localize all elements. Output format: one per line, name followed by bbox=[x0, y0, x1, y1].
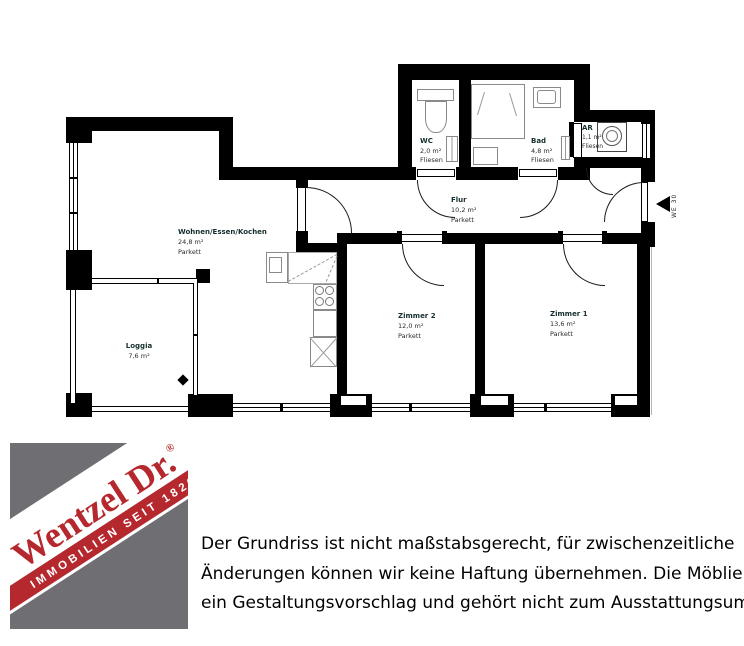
wall bbox=[398, 64, 590, 80]
washbasin-bowl bbox=[537, 90, 556, 104]
section-line bbox=[651, 247, 652, 415]
entrance-unit-label: WE 30 bbox=[671, 190, 678, 218]
room-floor: Fliesen bbox=[420, 156, 443, 166]
room-area: 1,1 m² bbox=[582, 133, 603, 142]
railing-post bbox=[193, 334, 198, 336]
room-label-wc: WC 2,0 m² Fliesen bbox=[420, 137, 443, 166]
company-logo: Wentzel Dr.® IMMOBILIEN SEIT 1820 bbox=[10, 443, 188, 629]
room-area: 12,0 m² bbox=[398, 321, 436, 331]
door-arc-zimmer1 bbox=[563, 244, 605, 286]
loggia-railing-left bbox=[70, 290, 76, 403]
wall bbox=[196, 269, 210, 283]
door-arc-wc bbox=[417, 180, 455, 218]
room-name: Loggia bbox=[108, 341, 170, 351]
window bbox=[372, 403, 470, 412]
disclaimer-text: Der Grundriss ist nicht maßstabsgerecht,… bbox=[201, 530, 744, 619]
kitchen-cabinet bbox=[313, 310, 337, 337]
window-reveal bbox=[481, 396, 508, 405]
door-leaf-zimmer2 bbox=[401, 234, 444, 242]
room-name: Bad bbox=[531, 137, 554, 147]
door-arc-zimmer2 bbox=[402, 244, 444, 286]
door-hinge bbox=[558, 231, 563, 244]
room-name: Wohnen/Essen/Kochen bbox=[178, 227, 267, 237]
room-area: 7,6 m² bbox=[108, 351, 170, 361]
room-floor: Fliesen bbox=[582, 142, 603, 151]
washing-machine-drum-inner bbox=[606, 130, 618, 142]
window-reveal bbox=[615, 396, 637, 405]
room-label-flur: Flur 10,2 m² Parkett bbox=[451, 195, 476, 225]
room-name: Zimmer 2 bbox=[398, 311, 436, 321]
door-leaf-living bbox=[297, 187, 306, 232]
door-leaf-wc bbox=[417, 169, 455, 177]
room-name: Zimmer 1 bbox=[550, 309, 588, 319]
wall bbox=[219, 117, 233, 180]
room-floor: Parkett bbox=[451, 215, 476, 225]
room-area: 10,2 m² bbox=[451, 205, 476, 215]
wall bbox=[459, 80, 471, 167]
door-hinge bbox=[602, 231, 607, 244]
wall bbox=[475, 243, 485, 394]
room-name: Flur bbox=[451, 195, 476, 205]
window-mullion bbox=[409, 403, 412, 412]
cooktop-burner bbox=[325, 297, 334, 306]
wall bbox=[637, 243, 650, 396]
disclaimer-line: Der Grundriss ist nicht maßstabsgerecht,… bbox=[201, 530, 744, 560]
radiator bbox=[561, 136, 570, 160]
wall bbox=[233, 167, 413, 180]
window-mullion bbox=[280, 403, 283, 412]
room-label-ar: AR 1,1 m² Fliesen bbox=[582, 124, 603, 151]
wall bbox=[66, 117, 92, 143]
loggia-glass-front bbox=[92, 278, 197, 284]
disclaimer-line: Änderungen können wir keine Haftung über… bbox=[201, 560, 744, 590]
door-arc-ar bbox=[586, 168, 613, 195]
toilet-cistern bbox=[417, 89, 454, 101]
window-mullion bbox=[69, 177, 78, 179]
wall bbox=[398, 64, 412, 180]
wall bbox=[188, 394, 233, 417]
window-reveal bbox=[341, 396, 366, 405]
room-floor: Fliesen bbox=[531, 156, 554, 166]
wall bbox=[66, 250, 92, 290]
room-name: AR bbox=[582, 124, 603, 133]
loggia-marker-icon bbox=[177, 374, 188, 385]
room-area: 2,0 m² bbox=[420, 147, 443, 157]
loggia-railing-bottom bbox=[92, 406, 188, 412]
door-leaf-zimmer1 bbox=[562, 234, 604, 242]
room-label-bad: Bad 4,8 m² Fliesen bbox=[531, 137, 554, 166]
door-arc-bad bbox=[520, 180, 558, 218]
shower-tub bbox=[471, 84, 525, 139]
window-mullion bbox=[69, 212, 78, 214]
cooktop-burner bbox=[315, 286, 324, 295]
logo-diagonal-band: Wentzel Dr.® IMMOBILIEN SEIT 1820 bbox=[10, 443, 188, 629]
door-leaf-bad bbox=[519, 169, 557, 177]
room-floor: Parkett bbox=[398, 331, 436, 341]
window bbox=[514, 403, 611, 412]
cooktop-burner bbox=[315, 297, 324, 306]
room-area: 4,8 m² bbox=[531, 147, 554, 157]
room-area: 13,6 m² bbox=[550, 319, 588, 329]
window bbox=[642, 124, 651, 158]
cooktop-burner bbox=[325, 286, 334, 295]
room-label-zimmer2: Zimmer 2 12,0 m² Parkett bbox=[398, 311, 436, 341]
toilet-bowl bbox=[425, 101, 447, 133]
room-name: WC bbox=[420, 137, 443, 147]
radiator bbox=[446, 136, 458, 162]
room-label-loggia: Loggia 7,6 m² bbox=[108, 341, 170, 361]
wall bbox=[641, 110, 655, 124]
loggia-railing-right bbox=[193, 283, 198, 395]
room-label-zimmer1: Zimmer 1 13,6 m² Parkett bbox=[550, 309, 588, 339]
wall bbox=[651, 124, 655, 158]
room-area: 24,8 m² bbox=[178, 237, 267, 247]
disclaimer-line: ein Gestaltungsvorschlag und gehört nich… bbox=[201, 589, 744, 619]
entrance-arrow-icon bbox=[656, 196, 670, 212]
door-hinge bbox=[397, 231, 402, 244]
room-floor: Parkett bbox=[178, 247, 267, 257]
window-mullion bbox=[544, 403, 547, 412]
room-floor: Parkett bbox=[550, 329, 588, 339]
door-leaf-ar bbox=[573, 123, 582, 158]
wall bbox=[70, 117, 233, 131]
wall bbox=[337, 242, 347, 394]
window-mullion bbox=[157, 278, 159, 284]
door-hinge bbox=[442, 231, 447, 244]
door-arc-living bbox=[306, 187, 352, 233]
window bbox=[69, 143, 78, 250]
room-label-wohnen: Wohnen/Essen/Kochen 24,8 m² Parkett bbox=[178, 227, 267, 257]
page: WE 30 Wohnen/Essen/Kochen 24,8 m² Parket… bbox=[0, 0, 744, 646]
bath-mat bbox=[473, 147, 498, 165]
kitchen-sink-bowl bbox=[269, 257, 282, 273]
